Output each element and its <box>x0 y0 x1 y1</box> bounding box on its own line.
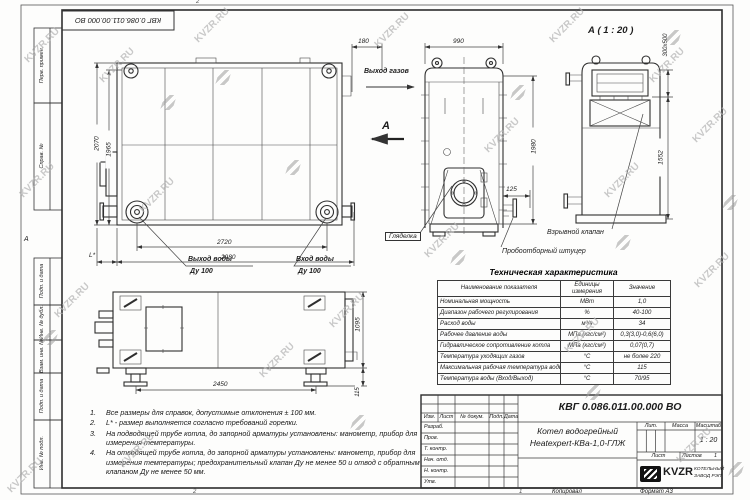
field-podp-data-2: Подп. и дата <box>39 366 45 426</box>
spec-param: Температура воды (Вход/Выход) <box>438 374 561 385</box>
row-prov: Пров. <box>424 435 438 441</box>
note-text: На подводящей трубе котла, до запорной а… <box>106 429 420 448</box>
sheet-label: Лист <box>637 453 680 459</box>
top-designation-rotated: КВГ 0.086.011.00.000 ВО <box>62 16 174 25</box>
front-dim-2070: 2070 <box>94 125 101 163</box>
spec-value: 1,0 <box>614 297 671 308</box>
spec-value: 34 <box>614 319 671 330</box>
gas-outlet-label: Выход газов <box>364 68 409 75</box>
spec-param: Рабочее давление воды <box>438 330 561 341</box>
col-data: Дата <box>504 414 518 420</box>
note-item: 2.L* - размер выполняется согласно требо… <box>90 418 420 427</box>
top-dim-1095: 1095 <box>355 306 362 344</box>
spec-header-units: Единицы измерения <box>561 281 614 297</box>
company-abbr: KVZR <box>663 466 693 478</box>
front-dim-l: L* <box>88 252 96 259</box>
note-number: 2. <box>90 418 106 427</box>
spec-row: Номинальная мощностьМВт1,0 <box>438 297 671 308</box>
spec-units: °С <box>561 352 614 363</box>
note-number: 1. <box>90 408 106 417</box>
top-view-details <box>120 292 357 368</box>
kvzr-logo-icon <box>640 466 661 482</box>
spec-value: 0,3(3,0)-0,6(6,0) <box>614 330 671 341</box>
spec-param: Номинальная мощность <box>438 297 561 308</box>
water-outlet-label: Выход воды <box>188 256 232 263</box>
row-nachotd: Нач. отд. <box>424 457 448 463</box>
water-outlet-dn: Ду 100 <box>190 268 213 275</box>
leader-lines <box>139 114 643 266</box>
spec-value: не более 220 <box>614 352 671 363</box>
note-item: 4.На отводящей трубе котла, до запорной … <box>90 448 420 476</box>
row-tkontr: Т. контр. <box>424 446 447 452</box>
spec-row: Расход водым³/ч34 <box>438 319 671 330</box>
fold-mark-copy: 1 <box>519 489 522 495</box>
section-arrow-letter: А <box>382 120 390 132</box>
company-line2: ЗАВОД РЭП <box>694 474 722 479</box>
col-podp: Подп. <box>489 414 504 420</box>
sheets-value: 1 <box>714 453 717 459</box>
drawing-sheet: KVZR.RU KVZR.RU KVZR.RU KVZR.RU KVZR.RU … <box>0 0 750 500</box>
front-view-details <box>122 58 351 220</box>
spec-units: м³/ч <box>561 319 614 330</box>
spec-row: Температура уходящих газов°Сне более 220 <box>438 352 671 363</box>
fold-mark-bottom: 2 <box>193 489 196 495</box>
row-utv: Утв. <box>424 479 436 485</box>
spec-units: °С <box>561 374 614 385</box>
side-dim-125: 125 <box>505 186 518 193</box>
scale-value: 1 : 20 <box>695 437 722 444</box>
field-perv-primen: Перв. примен. <box>39 35 45 95</box>
col-izm: Изм. <box>421 414 438 420</box>
titleblock-name-line2: Heatexpert-КВа-1,0-ГЛЖ <box>518 438 637 448</box>
spec-table: Наименование показателя Единицы измерени… <box>437 280 671 385</box>
spec-units: МПа (кгс/см²) <box>561 330 614 341</box>
note-number: 3. <box>90 429 106 448</box>
spec-header-name: Наименование показателя <box>438 281 561 297</box>
footer-copied: Копировал <box>552 489 582 495</box>
zone-mark: А <box>24 236 29 243</box>
col-list: Лист <box>438 414 455 420</box>
top-dim-2450: 2450 <box>212 381 228 388</box>
note-text: L* - размер выполняется согласно требова… <box>106 418 420 427</box>
side-dim-990: 990 <box>452 38 465 45</box>
company-line1: КОТЕЛЬНЫЙ <box>694 467 724 472</box>
field-inv-podl: Инв. № подл. <box>39 423 45 483</box>
front-dim-2720: 2720 <box>216 239 232 246</box>
water-inlet-dn: Ду 100 <box>298 268 321 275</box>
titleblock-designation: КВГ 0.086.011.00.000 ВО <box>518 401 722 413</box>
note-text: Все размеры для справок, допустимые откл… <box>106 408 420 417</box>
spec-value: 0,07(0,7) <box>614 341 671 352</box>
front-dim-180: 180 <box>357 38 370 45</box>
field-sprav-no: Справ. № <box>39 126 45 186</box>
section-a-title: А ( 1 : 20 ) <box>588 25 633 36</box>
spec-param: Диапазон рабочего регулирования <box>438 308 561 319</box>
spec-param: Гидравлическое сопротивление котла <box>438 341 561 352</box>
row-razrab: Разраб. <box>424 424 444 430</box>
water-inlet-label: Вход воды <box>296 256 334 263</box>
sheets-label: Листов <box>682 453 702 459</box>
note-text: На отводящей трубе котла, до запорной ар… <box>106 448 420 476</box>
spec-param: Максимальная рабочая температура воды <box>438 363 561 374</box>
fold-mark-top: 2 <box>196 0 199 5</box>
top-dim-115: 115 <box>355 377 361 407</box>
explosion-valve-label: Взрывной клапан <box>547 229 604 236</box>
spec-table-title: Техническая характеристика <box>437 267 670 277</box>
spec-row: Диапазон рабочего регулирования%40-100 <box>438 308 671 319</box>
col-dokum: № докум. <box>455 414 489 420</box>
side-view-outline <box>425 58 517 236</box>
section-a-dim-300x500: 300х500 <box>663 26 669 64</box>
spec-row: Температура воды (Вход/Выход)°С70/95 <box>438 374 671 385</box>
spec-value: 40-100 <box>614 308 671 319</box>
side-dim-1980: 1980 <box>531 128 538 166</box>
spec-table-block: Техническая характеристика Наименование … <box>437 267 670 385</box>
note-item: 3.На подводящей трубе котла, до запорной… <box>90 429 420 448</box>
spec-param: Температура уходящих газов <box>438 352 561 363</box>
row-nkontr: Н. контр. <box>424 468 448 474</box>
spec-units: МВт <box>561 297 614 308</box>
top-view-outline <box>95 292 353 386</box>
sight-glass-label: Гляделка <box>385 232 421 241</box>
notes-block: 1.Все размеры для справок, допустимые от… <box>90 408 420 478</box>
spec-row: Гидравлическое сопротивление котлаМПа (к… <box>438 341 671 352</box>
note-number: 4. <box>90 448 106 476</box>
spec-param: Расход воды <box>438 319 561 330</box>
titleblock-name-line1: Котел водогрейный <box>518 426 637 436</box>
top-view-lug-marks <box>124 299 321 361</box>
spec-header-value: Значение <box>614 281 671 297</box>
sampling-fitting-label: Пробоотборный штуцер <box>502 248 586 255</box>
spec-value: 70/95 <box>614 374 671 385</box>
scale-label: Масштаб <box>695 423 722 429</box>
section-a-dim-1552: 1552 <box>658 139 665 177</box>
spec-units: °С <box>561 363 614 374</box>
note-item: 1.Все размеры для справок, допустимые от… <box>90 408 420 417</box>
spec-units: % <box>561 308 614 319</box>
spec-value: 115 <box>614 363 671 374</box>
front-dim-1965: 1965 <box>106 131 113 169</box>
front-view-outline <box>100 63 355 225</box>
spec-row: Максимальная рабочая температура воды°С1… <box>438 363 671 374</box>
spec-units: МПа (кгс/см²) <box>561 341 614 352</box>
footer-format: Формат А3 <box>640 489 673 495</box>
spec-row: Рабочее давление водыМПа (кгс/см²)0,3(3,… <box>438 330 671 341</box>
mass-label: Масса <box>665 423 695 429</box>
lit-label: Лит. <box>637 423 665 429</box>
